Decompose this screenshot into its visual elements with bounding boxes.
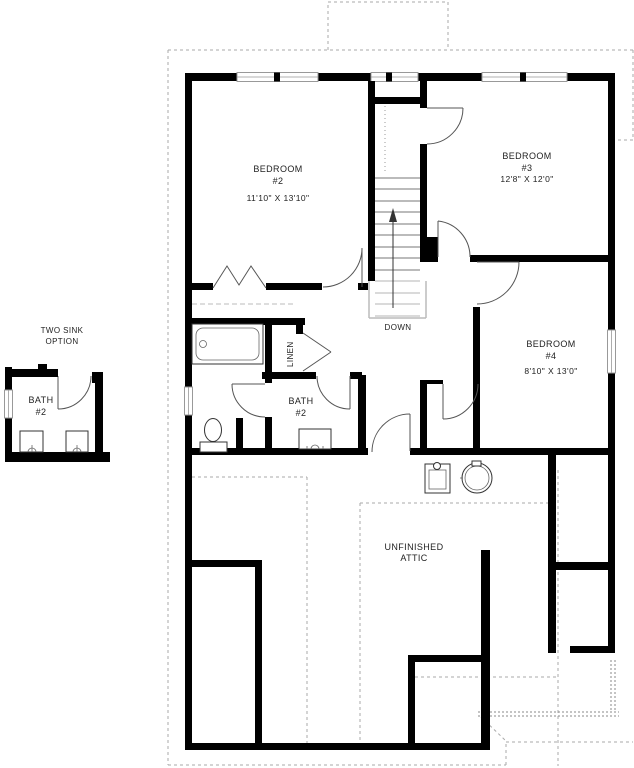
dormer-outline <box>328 2 448 50</box>
bifold-closet-doors <box>213 266 266 288</box>
option-bath-number: #2 <box>36 407 47 417</box>
fixtures <box>192 304 492 493</box>
option-note-line2: OPTION <box>45 337 78 346</box>
bedroom2-number: #2 <box>273 176 284 186</box>
bedroom4-name: BEDROOM <box>526 339 575 349</box>
bedroom3-dims: 12'8" X 12'0" <box>500 174 553 184</box>
bedroom2-window <box>237 73 318 82</box>
attic-boundary-lines <box>192 470 558 766</box>
roof-double-dash-lines <box>478 660 619 716</box>
bedroom2-dims: 11'10" X 13'10" <box>247 193 310 203</box>
roof-right-line <box>618 50 633 140</box>
bedroom4-door <box>477 262 519 304</box>
bedroom2-door <box>323 248 362 287</box>
bedroom4-closet-door <box>443 384 478 419</box>
floor-plan-svg: BEDROOM #2 11'10" X 13'10" BEDROOM #3 12… <box>0 0 634 768</box>
stair-window <box>371 73 418 82</box>
linen-label: LINEN <box>286 341 295 367</box>
labels: BEDROOM #2 11'10" X 13'10" BEDROOM #3 12… <box>29 151 578 563</box>
option-bath-door <box>58 376 91 409</box>
bath-vanity-sink <box>299 429 331 449</box>
bedroom3-number: #3 <box>522 163 533 173</box>
stair-closet-door <box>427 108 463 144</box>
water-heater <box>460 461 492 493</box>
furnace <box>425 463 450 494</box>
bath2-number: #2 <box>296 408 307 418</box>
two-sink-option-detail <box>5 364 111 462</box>
bedroom3-door <box>438 221 470 257</box>
stairs <box>369 106 426 318</box>
bedroom3-name: BEDROOM <box>502 151 551 161</box>
bedroom4-number: #4 <box>546 351 557 361</box>
attic-name-line2: ATTIC <box>400 553 427 563</box>
bedroom4-dims: 8'10" X 13'0" <box>524 366 577 376</box>
option-sink-right <box>66 431 88 452</box>
toilet <box>200 419 227 453</box>
bath-window <box>185 387 193 415</box>
tub-room-door <box>232 384 265 417</box>
option-window <box>5 390 13 418</box>
floor-plan-page: BEDROOM #2 11'10" X 13'10" BEDROOM #3 12… <box>0 0 634 768</box>
stair-down-label: DOWN <box>385 323 412 332</box>
attic-door <box>372 414 410 452</box>
bedroom4-window <box>608 330 616 373</box>
bath-door <box>317 376 350 409</box>
bathtub <box>192 324 263 364</box>
attic-name-line1: UNFINISHED <box>384 542 443 552</box>
option-sink-left <box>20 431 43 452</box>
linen-door <box>303 333 331 371</box>
option-note-line1: TWO SINK <box>41 326 84 335</box>
bedroom3-window <box>482 73 567 82</box>
bath2-name: BATH <box>289 396 314 406</box>
bedroom2-name: BEDROOM <box>253 164 302 174</box>
option-bath-name: BATH <box>29 395 54 405</box>
